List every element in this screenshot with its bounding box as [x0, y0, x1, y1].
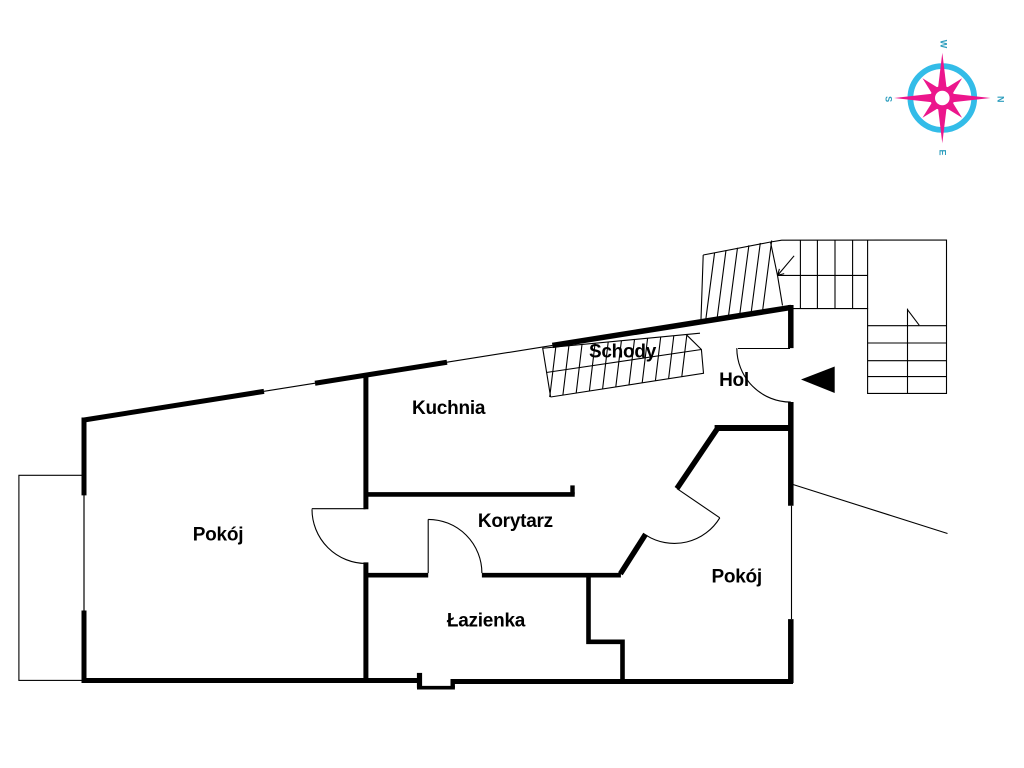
svg-text:Pokój: Pokój: [711, 566, 761, 587]
svg-text:S: S: [883, 96, 893, 102]
svg-text:Korytarz: Korytarz: [478, 511, 553, 532]
svg-text:W: W: [938, 40, 948, 49]
svg-text:Łazienka: Łazienka: [447, 611, 526, 632]
svg-text:E: E: [937, 149, 947, 155]
svg-text:Kuchnia: Kuchnia: [412, 398, 486, 419]
svg-text:Schody: Schody: [589, 341, 657, 362]
svg-text:Hol: Hol: [719, 370, 749, 391]
svg-text:Pokój: Pokój: [193, 524, 243, 545]
svg-text:N: N: [995, 96, 1005, 103]
